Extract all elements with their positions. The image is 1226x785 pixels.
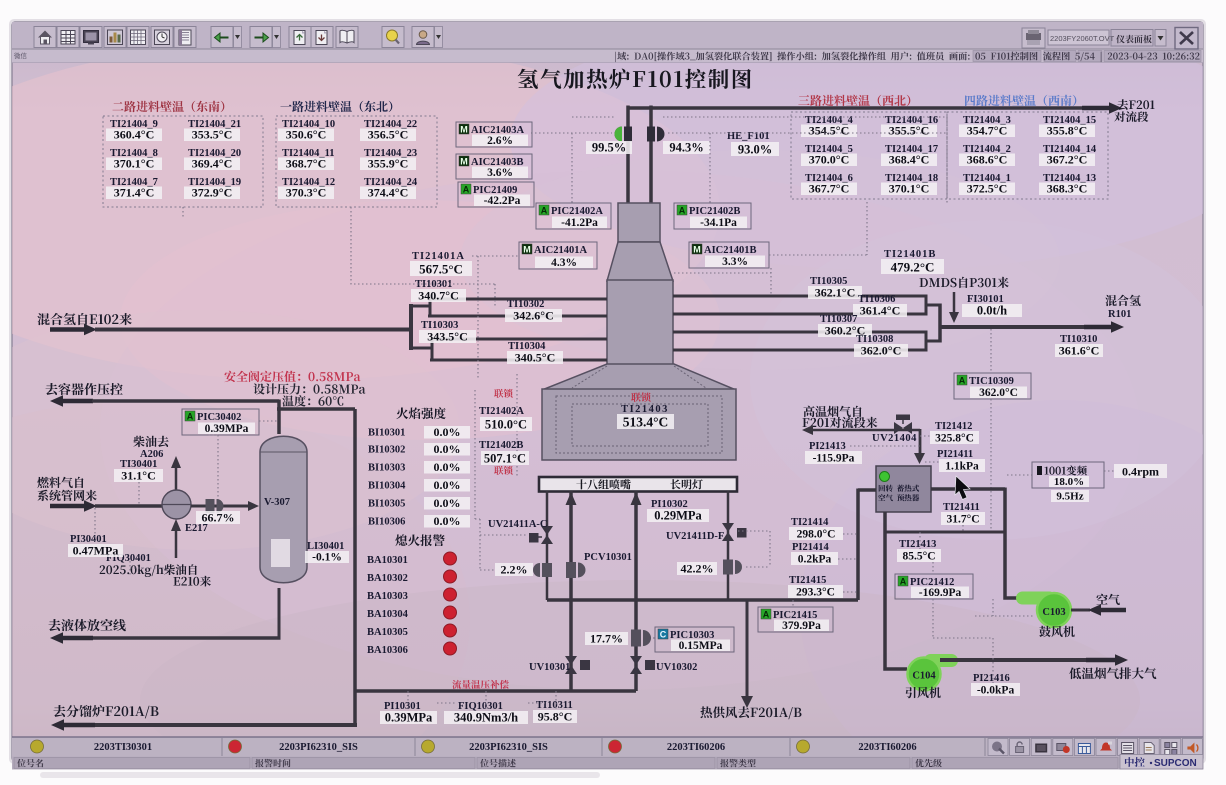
- svg-text:UV21411D-F: UV21411D-F: [666, 531, 724, 542]
- svg-text:TI21411: TI21411: [943, 502, 980, 513]
- svg-text:350.6°C: 350.6°C: [286, 128, 326, 142]
- svg-text:479.2°C: 479.2°C: [891, 260, 935, 275]
- svg-text:-41.2Pa: -41.2Pa: [561, 217, 598, 229]
- svg-text:513.4°C: 513.4°C: [623, 415, 669, 430]
- svg-text:3.6%: 3.6%: [487, 167, 513, 179]
- svg-text:17.7%: 17.7%: [590, 632, 623, 646]
- svg-text:298.0°C: 298.0°C: [797, 529, 836, 541]
- svg-text:0.0%: 0.0%: [434, 460, 461, 474]
- svg-text:3.3%: 3.3%: [722, 256, 748, 268]
- svg-text:TIC10309: TIC10309: [969, 376, 1014, 387]
- svg-text:PI21413: PI21413: [809, 441, 846, 452]
- svg-text:0.4rpm: 0.4rpm: [1122, 465, 1159, 479]
- svg-text:-0.1%: -0.1%: [312, 552, 342, 564]
- svg-text:-34.1Pa: -34.1Pa: [700, 217, 737, 229]
- svg-text:342.6°C: 342.6°C: [513, 309, 553, 323]
- svg-text:A: A: [541, 206, 548, 216]
- svg-text:94.3%: 94.3%: [669, 141, 703, 155]
- svg-text:PCV10301: PCV10301: [584, 552, 632, 563]
- svg-text:M: M: [523, 245, 531, 255]
- svg-text:BI10302: BI10302: [368, 445, 405, 456]
- svg-text:0.0%: 0.0%: [434, 425, 461, 439]
- svg-text:TI21415: TI21415: [789, 575, 826, 586]
- svg-text:340.5°C: 340.5°C: [515, 351, 555, 365]
- svg-text:BI10305: BI10305: [368, 499, 405, 510]
- svg-text:UV10301: UV10301: [529, 662, 570, 673]
- svg-text:0.39MPa: 0.39MPa: [385, 711, 433, 725]
- svg-text:0.0%: 0.0%: [434, 442, 461, 456]
- svg-text:99.5%: 99.5%: [592, 141, 626, 155]
- svg-text:567.5°C: 567.5°C: [419, 262, 463, 277]
- svg-text:42.2%: 42.2%: [681, 562, 714, 576]
- svg-text:M: M: [460, 125, 468, 135]
- svg-text:M: M: [693, 245, 701, 255]
- svg-text:2203PI62310_SIS: 2203PI62310_SIS: [469, 742, 548, 753]
- svg-text:340.7°C: 340.7°C: [418, 289, 458, 303]
- svg-text:A: A: [900, 577, 907, 587]
- svg-text:TI21403: TI21403: [621, 404, 669, 415]
- svg-text:BA10303: BA10303: [367, 591, 408, 602]
- svg-text:C: C: [660, 630, 667, 640]
- svg-text:507.1°C: 507.1°C: [484, 452, 526, 466]
- svg-text:0.29MPa: 0.29MPa: [654, 509, 702, 523]
- svg-text:PI21411: PI21411: [937, 449, 973, 460]
- svg-text:1.1kPa: 1.1kPa: [945, 461, 979, 473]
- svg-text:372.5°C: 372.5°C: [967, 182, 1007, 196]
- svg-text:BA10304: BA10304: [367, 609, 409, 620]
- svg-text:-169.9Pa: -169.9Pa: [919, 587, 962, 599]
- svg-text:A: A: [679, 206, 686, 216]
- svg-text:356.5°C: 356.5°C: [368, 128, 408, 142]
- svg-text:371.4°C: 371.4°C: [114, 186, 154, 200]
- svg-text:BI10303: BI10303: [368, 463, 405, 474]
- svg-text:TI21414: TI21414: [791, 517, 829, 528]
- svg-text:PIC30402: PIC30402: [197, 412, 241, 423]
- svg-text:355.9°C: 355.9°C: [368, 157, 408, 171]
- svg-text:362.1°C: 362.1°C: [815, 286, 855, 300]
- svg-text:2.2%: 2.2%: [501, 563, 528, 577]
- svg-text:379.9Pa: 379.9Pa: [782, 620, 821, 632]
- svg-text:BA10301: BA10301: [367, 555, 408, 566]
- svg-text:2203FY2060T.OVT: 2203FY2060T.OVT: [1050, 34, 1115, 43]
- svg-text:BA10305: BA10305: [367, 627, 408, 638]
- svg-text:BA10302: BA10302: [367, 573, 408, 584]
- svg-text:SUPCON: SUPCON: [1154, 758, 1197, 769]
- svg-text:362.0°C: 362.0°C: [861, 344, 901, 358]
- svg-text:A: A: [187, 412, 194, 422]
- svg-text:BI10301: BI10301: [368, 428, 405, 439]
- svg-text:31.7°C: 31.7°C: [946, 514, 979, 526]
- svg-text:368.3°C: 368.3°C: [1047, 182, 1087, 196]
- svg-text:340.9Nm3/h: 340.9Nm3/h: [454, 711, 518, 725]
- svg-text:UV21411A-C: UV21411A-C: [488, 519, 548, 530]
- svg-text:370.1°C: 370.1°C: [889, 182, 929, 196]
- svg-text:353.5°C: 353.5°C: [192, 128, 232, 142]
- svg-text:TI21401A: TI21401A: [412, 251, 465, 262]
- svg-text:TI21401B: TI21401B: [884, 249, 936, 260]
- svg-text:M: M: [460, 157, 468, 167]
- svg-text:85.5°C: 85.5°C: [902, 551, 935, 563]
- svg-text:2203TI60206: 2203TI60206: [667, 742, 725, 753]
- svg-text:0.0%: 0.0%: [434, 496, 461, 510]
- svg-text:360.4°C: 360.4°C: [114, 128, 154, 142]
- svg-text:PIC21402A: PIC21402A: [551, 206, 603, 217]
- svg-text:370.3°C: 370.3°C: [286, 186, 326, 200]
- svg-text:66.7%: 66.7%: [202, 511, 235, 525]
- svg-text:2203TI30301: 2203TI30301: [94, 742, 152, 753]
- svg-text:293.3°C: 293.3°C: [796, 587, 835, 599]
- svg-text:-0.0kPa: -0.0kPa: [977, 685, 1015, 697]
- svg-text:PI21414: PI21414: [792, 542, 830, 553]
- svg-text:370.1°C: 370.1°C: [114, 157, 154, 171]
- svg-text:9.5Hz: 9.5Hz: [1056, 491, 1083, 503]
- svg-text:2203TI60206: 2203TI60206: [858, 742, 916, 753]
- svg-text:2.6%: 2.6%: [487, 135, 513, 147]
- svg-text:R101: R101: [1108, 309, 1131, 320]
- svg-text:AIC21401A: AIC21401A: [534, 245, 588, 256]
- svg-text:BI10306: BI10306: [368, 517, 405, 528]
- svg-text:2203PI62310_SIS: 2203PI62310_SIS: [279, 742, 358, 753]
- svg-text:V-307: V-307: [264, 497, 290, 508]
- svg-text:A: A: [763, 610, 770, 620]
- svg-text:343.5°C: 343.5°C: [427, 330, 467, 344]
- svg-text:TI21412: TI21412: [935, 421, 972, 432]
- svg-text:325.8°C: 325.8°C: [935, 433, 974, 445]
- svg-text:C104: C104: [912, 671, 936, 682]
- svg-text:361.4°C: 361.4°C: [860, 304, 900, 318]
- svg-text:368.7°C: 368.7°C: [286, 157, 326, 171]
- svg-text:367.7°C: 367.7°C: [809, 182, 849, 196]
- svg-text:4.3%: 4.3%: [551, 257, 577, 269]
- svg-text:-115.9Pa: -115.9Pa: [813, 453, 855, 465]
- svg-text:PIC21402B: PIC21402B: [689, 206, 740, 217]
- svg-text:354.7°C: 354.7°C: [967, 124, 1007, 138]
- svg-text:BI10304: BI10304: [368, 481, 406, 492]
- svg-text:LI30401: LI30401: [307, 541, 344, 552]
- svg-text:362.0°C: 362.0°C: [979, 387, 1018, 399]
- svg-text:367.2°C: 367.2°C: [1047, 153, 1087, 167]
- svg-text:354.5°C: 354.5°C: [809, 124, 849, 138]
- svg-text:370.0°C: 370.0°C: [809, 153, 849, 167]
- svg-text:95.8°C: 95.8°C: [538, 710, 572, 724]
- svg-text:0.0%: 0.0%: [434, 478, 461, 492]
- svg-text:0.15MPa: 0.15MPa: [679, 640, 723, 652]
- svg-text:PI21416: PI21416: [973, 673, 1010, 684]
- svg-text:0.47MPa: 0.47MPa: [73, 544, 119, 558]
- svg-text:TI21413: TI21413: [899, 539, 936, 550]
- svg-text:18.0%: 18.0%: [1054, 476, 1084, 488]
- svg-text:368.4°C: 368.4°C: [889, 153, 929, 167]
- svg-text:E217: E217: [185, 523, 208, 534]
- svg-text:361.6°C: 361.6°C: [1059, 344, 1099, 358]
- svg-text:微信: 微信: [14, 51, 28, 60]
- svg-text:355.8°C: 355.8°C: [1047, 124, 1087, 138]
- svg-text:372.9°C: 372.9°C: [192, 186, 232, 200]
- svg-text:355.5°C: 355.5°C: [889, 124, 929, 138]
- svg-text:31.1°C: 31.1°C: [121, 469, 155, 483]
- svg-text:368.6°C: 368.6°C: [967, 153, 1007, 167]
- svg-text:TI21402B: TI21402B: [479, 440, 523, 451]
- svg-text:-42.2Pa: -42.2Pa: [484, 195, 521, 207]
- svg-text:0.0t/h: 0.0t/h: [977, 304, 1007, 318]
- svg-text:0.0%: 0.0%: [434, 514, 461, 528]
- svg-text:BA10306: BA10306: [367, 645, 408, 656]
- svg-text:0.39MPa: 0.39MPa: [205, 423, 249, 435]
- svg-text:AIC21401B: AIC21401B: [704, 245, 757, 256]
- svg-text:0.2kPa: 0.2kPa: [798, 554, 832, 566]
- svg-text:UV21404: UV21404: [872, 433, 917, 444]
- svg-text:510.0°C: 510.0°C: [485, 418, 527, 432]
- svg-text:369.4°C: 369.4°C: [192, 157, 232, 171]
- svg-text:C103: C103: [1042, 607, 1065, 618]
- svg-text:UV10302: UV10302: [656, 662, 697, 673]
- svg-text:A: A: [463, 185, 470, 195]
- svg-text:93.0%: 93.0%: [738, 143, 772, 157]
- svg-text:374.4°C: 374.4°C: [368, 186, 408, 200]
- svg-text:A: A: [959, 376, 966, 386]
- svg-text:TI21402A: TI21402A: [479, 406, 524, 417]
